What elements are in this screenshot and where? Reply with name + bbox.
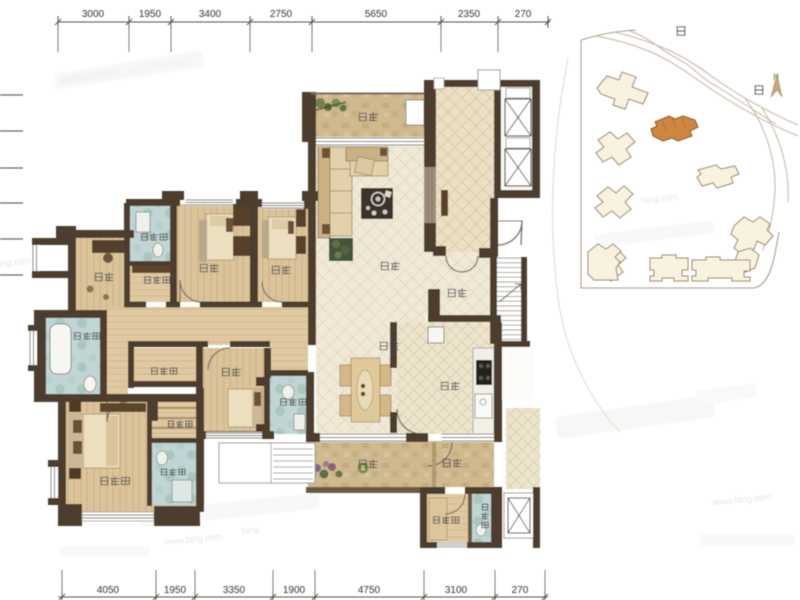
svg-text:3400: 3400 bbox=[199, 9, 222, 20]
svg-text:270: 270 bbox=[512, 585, 529, 596]
svg-text:3000: 3000 bbox=[82, 9, 105, 20]
svg-text:5650: 5650 bbox=[365, 9, 388, 20]
svg-text:2750: 2750 bbox=[270, 9, 293, 20]
svg-text:1950: 1950 bbox=[139, 9, 162, 20]
svg-text:1900: 1900 bbox=[283, 585, 306, 596]
svg-text:2350: 2350 bbox=[458, 9, 481, 20]
svg-text:fang: fang bbox=[241, 524, 259, 536]
svg-text:270: 270 bbox=[515, 9, 532, 20]
svg-text:1950: 1950 bbox=[164, 585, 187, 596]
svg-text:4750: 4750 bbox=[358, 585, 381, 596]
svg-text:3100: 3100 bbox=[445, 585, 468, 596]
svg-text:4050: 4050 bbox=[97, 585, 120, 596]
svg-text:3350: 3350 bbox=[223, 585, 246, 596]
